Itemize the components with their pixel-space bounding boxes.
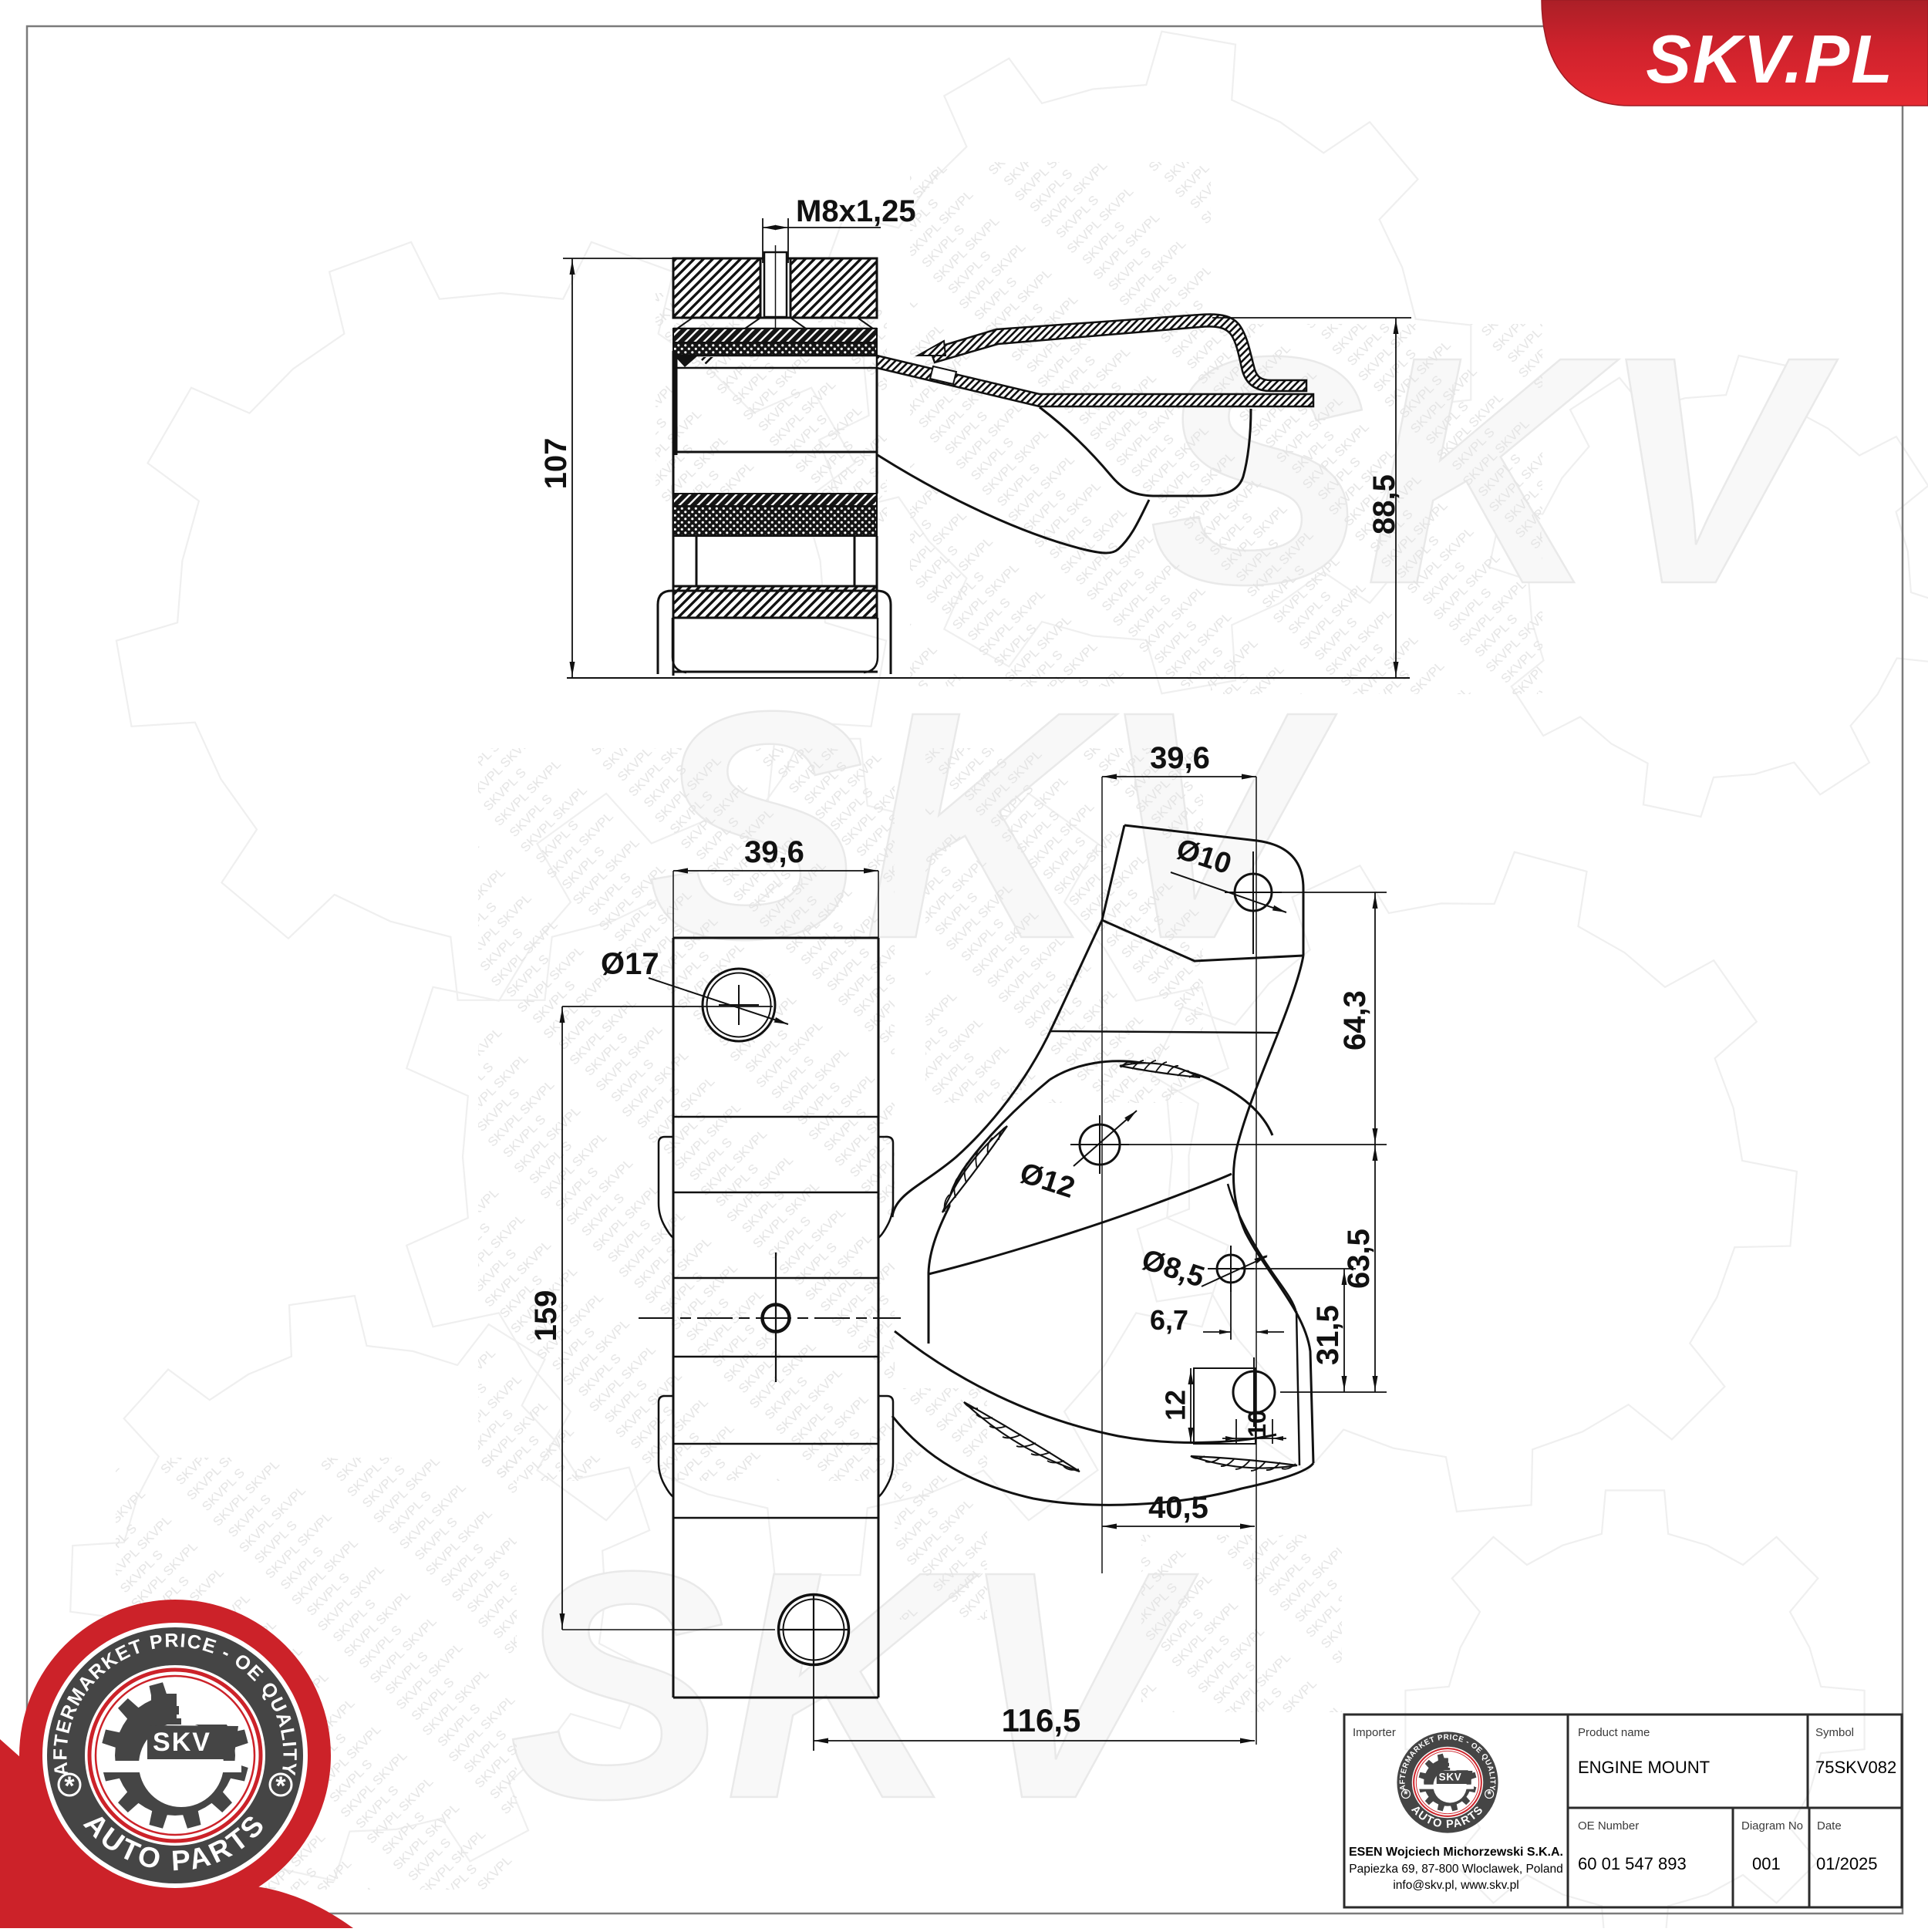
- svg-text:60 01 547 893: 60 01 547 893: [1578, 1854, 1687, 1873]
- svg-text:SKV: SKV: [1439, 1772, 1462, 1783]
- svg-text:*: *: [275, 1772, 286, 1801]
- svg-text:Papiezka 69, 87-800 Wloclawek,: Papiezka 69, 87-800 Wloclawek, Poland: [1349, 1863, 1562, 1876]
- svg-text:31,5: 31,5: [1311, 1305, 1345, 1365]
- svg-text:OE Number: OE Number: [1578, 1819, 1639, 1833]
- svg-text:39,6: 39,6: [744, 835, 804, 869]
- svg-text:39,6: 39,6: [1150, 741, 1210, 775]
- svg-text:Importer: Importer: [1353, 1726, 1396, 1739]
- svg-text:88,5: 88,5: [1367, 474, 1401, 534]
- svg-text:Symbol: Symbol: [1815, 1726, 1854, 1739]
- svg-text:*: *: [64, 1772, 75, 1801]
- svg-text:63,5: 63,5: [1342, 1229, 1376, 1289]
- svg-text:01/2025: 01/2025: [1816, 1854, 1878, 1873]
- svg-text:SKV.PL: SKV.PL: [1646, 21, 1894, 97]
- svg-text:SKV: SKV: [509, 1505, 1202, 1866]
- svg-text:Ø12: Ø12: [1016, 1157, 1078, 1205]
- svg-text:40,5: 40,5: [1148, 1491, 1208, 1525]
- svg-text:6,7: 6,7: [1150, 1304, 1188, 1336]
- svg-text:SKV: SKV: [153, 1728, 211, 1757]
- svg-text:Date: Date: [1817, 1819, 1842, 1833]
- svg-text:*: *: [1487, 1789, 1492, 1800]
- svg-text:12: 12: [1160, 1390, 1192, 1421]
- svg-text:Diagram No: Diagram No: [1741, 1819, 1803, 1833]
- svg-text:107: 107: [539, 438, 573, 490]
- svg-text:ESEN Wojciech Michorzewski S.K: ESEN Wojciech Michorzewski S.K.A.: [1349, 1846, 1563, 1859]
- svg-text:001: 001: [1752, 1854, 1781, 1873]
- svg-text:Ø8,5: Ø8,5: [1138, 1243, 1208, 1293]
- svg-text:10: 10: [1243, 1410, 1271, 1438]
- svg-text:Product name: Product name: [1578, 1726, 1650, 1739]
- svg-text:75SKV082: 75SKV082: [1815, 1758, 1896, 1777]
- svg-text:*: *: [1404, 1789, 1408, 1800]
- svg-text:ENGINE MOUNT: ENGINE MOUNT: [1578, 1758, 1710, 1777]
- svg-text:159: 159: [529, 1290, 563, 1342]
- svg-text:Ø17: Ø17: [601, 947, 659, 981]
- svg-text:64,3: 64,3: [1338, 990, 1372, 1050]
- svg-text:M8x1,25: M8x1,25: [796, 194, 916, 228]
- svg-text:info@skv.pl, www.skv.pl: info@skv.pl, www.skv.pl: [1393, 1879, 1518, 1892]
- svg-text:116,5: 116,5: [1002, 1702, 1081, 1738]
